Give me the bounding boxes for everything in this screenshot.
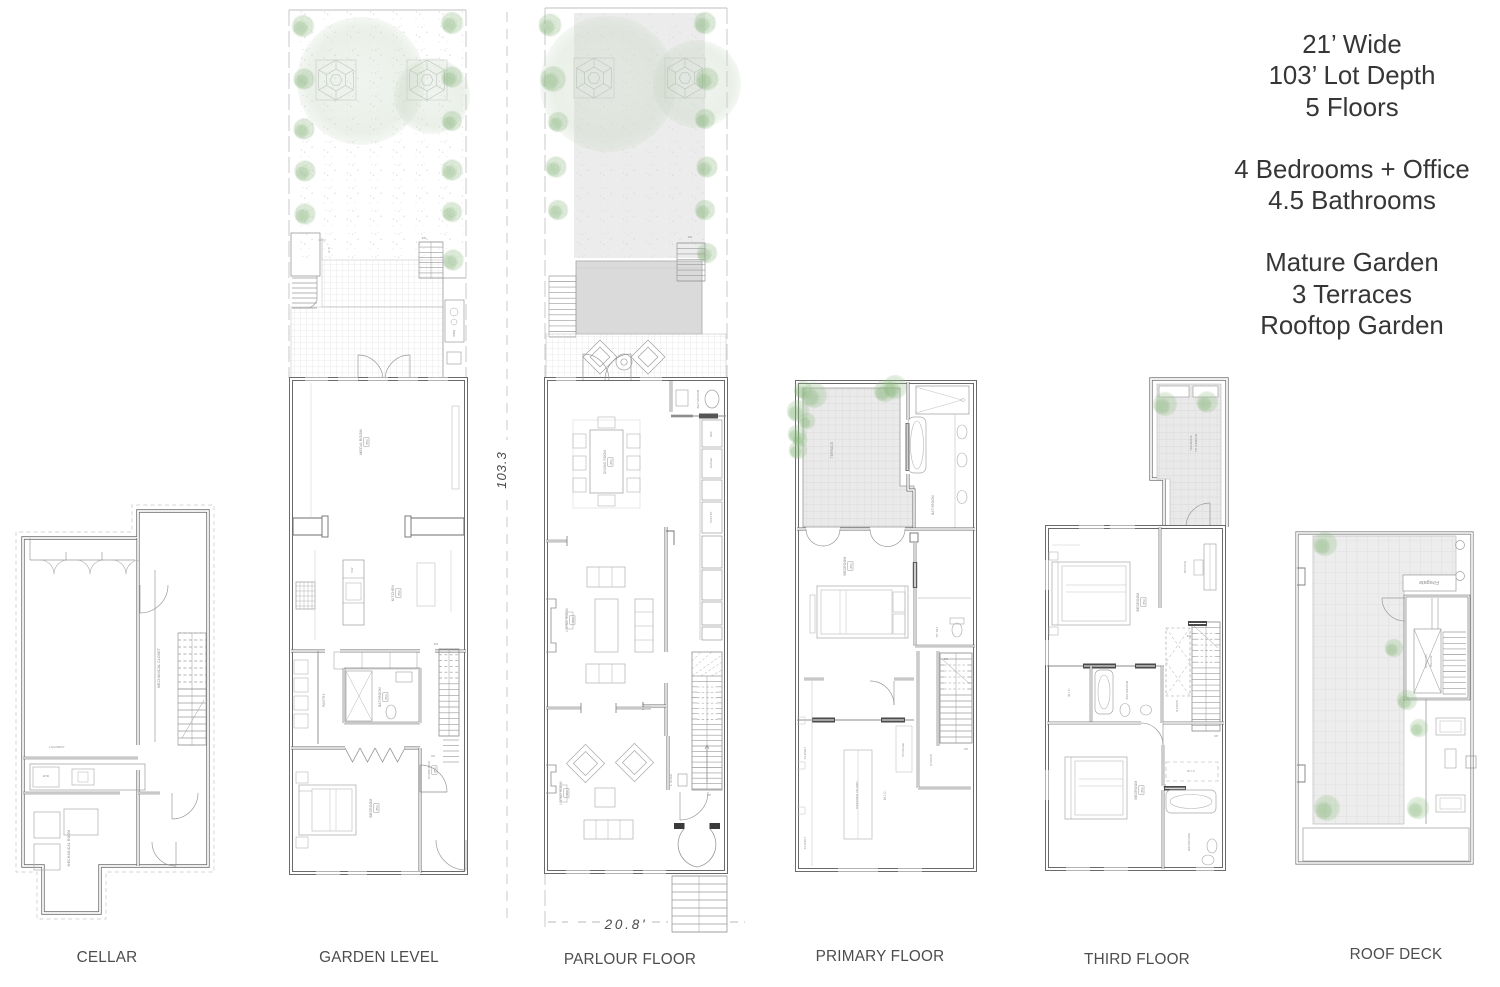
svg-text:BATHROOM: BATHROOM	[1187, 833, 1191, 851]
svg-text:20.8': 20.8'	[604, 917, 648, 932]
svg-text:4.5 Bathrooms: 4.5 Bathrooms	[1268, 187, 1436, 215]
svg-text:BEDROOM: BEDROOM	[369, 799, 373, 818]
svg-text:PANTRY: PANTRY	[322, 692, 326, 707]
svg-text:21’ Wide: 21’ Wide	[1302, 31, 1401, 59]
svg-text:UP: UP	[964, 747, 968, 751]
svg-text:DN: DN	[422, 236, 426, 240]
svg-text:KITCHEN: KITCHEN	[391, 585, 395, 602]
svg-text:STAIRS: STAIRS	[1175, 700, 1179, 712]
svg-text:BELOW: BELOW	[1429, 655, 1433, 666]
svg-text:DN: DN	[434, 642, 438, 646]
svg-text:BATHROOM: BATHROOM	[378, 687, 382, 707]
svg-text:DN: DN	[688, 235, 692, 239]
svg-text:LIVING ROOM: LIVING ROOM	[565, 608, 569, 632]
svg-text:BEDROOM: BEDROOM	[1136, 593, 1140, 612]
svg-text:TERRACE: TERRACE	[830, 442, 834, 459]
svg-text:DW: DW	[350, 567, 354, 572]
svg-text:BEDROOM: BEDROOM	[1134, 781, 1138, 800]
svg-text:RANGE: RANGE	[709, 458, 713, 468]
svg-text:PRIMARY FLOOR: PRIMARY FLOOR	[816, 948, 945, 965]
svg-text:4 Bedrooms + Office: 4 Bedrooms + Office	[1234, 156, 1469, 184]
svg-text:CLOSET: CLOSET	[803, 837, 807, 849]
svg-text:DRESSER ISLAND: DRESSER ISLAND	[855, 781, 859, 808]
svg-text:STAIRS: STAIRS	[929, 754, 933, 766]
svg-text:OPEN TO: OPEN TO	[1424, 653, 1428, 668]
svg-text:853: 853	[397, 590, 401, 595]
svg-text:Mature Garden: Mature Garden	[1265, 249, 1439, 277]
svg-text:Firegate: Firegate	[1419, 579, 1439, 585]
svg-text:TO REMAIN: TO REMAIN	[1194, 434, 1198, 452]
svg-text:REF: REF	[709, 431, 713, 437]
svg-text:W/D: W/D	[43, 774, 50, 778]
svg-text:UP: UP	[1214, 734, 1218, 738]
svg-text:BBQ: BBQ	[452, 329, 456, 336]
svg-text:BATHROOM: BATHROOM	[696, 389, 700, 408]
svg-text:TERRACE: TERRACE	[1189, 435, 1193, 451]
svg-text:UP: UP	[431, 754, 435, 758]
svg-text:TO S&T: TO S&T	[935, 626, 939, 637]
svg-text:853: 853	[384, 694, 388, 699]
svg-text:PANTRY: PANTRY	[709, 511, 713, 523]
svg-text:STORAGE: STORAGE	[901, 743, 905, 757]
svg-text:853: 853	[609, 459, 613, 464]
svg-text:OFFICE: OFFICE	[1183, 561, 1187, 573]
svg-text:853: 853	[365, 439, 369, 444]
svg-text:W.I.C: W.I.C	[1187, 769, 1195, 773]
svg-text:DN: DN	[944, 657, 948, 661]
svg-text:DN: DN	[1187, 634, 1191, 638]
svg-text:ROOF DECK: ROOF DECK	[1350, 946, 1443, 963]
svg-text:MEDIA ROOM: MEDIA ROOM	[359, 429, 363, 454]
svg-text:BATHROOM: BATHROOM	[931, 495, 935, 515]
svg-text:BEDROOM: BEDROOM	[843, 557, 847, 576]
svg-text:LAUNDRY: LAUNDRY	[49, 745, 65, 749]
svg-text:THIRD FLOOR: THIRD FLOOR	[1084, 951, 1190, 968]
svg-text:MECHANICAL CLOSET: MECHANICAL CLOSET	[157, 648, 161, 688]
svg-text:5 Floors: 5 Floors	[1305, 94, 1398, 122]
svg-text:W.I.C.: W.I.C.	[883, 790, 887, 800]
svg-text:GARDEN LEVEL: GARDEN LEVEL	[319, 949, 439, 966]
svg-text:853: 853	[375, 805, 379, 810]
svg-text:103.3: 103.3	[494, 451, 509, 489]
svg-text:CELLAR: CELLAR	[77, 949, 138, 966]
svg-text:F. DIVER: F. DIVER	[669, 774, 673, 786]
svg-text:3'-6: 3'-6	[327, 247, 331, 253]
svg-text:Rooftop Garden: Rooftop Garden	[1260, 312, 1444, 340]
svg-text:853: 853	[1142, 599, 1146, 604]
svg-text:3 Terraces: 3 Terraces	[1292, 281, 1412, 309]
svg-text:853: 853	[849, 563, 853, 568]
svg-text:CORRIDOR: CORRIDOR	[427, 760, 431, 779]
svg-text:CLOSET: CLOSET	[803, 747, 807, 759]
svg-text:PARLOUR FLOOR: PARLOUR FLOOR	[564, 951, 696, 968]
svg-text:LIVING ROOM: LIVING ROOM	[559, 781, 563, 805]
svg-text:103’ Lot Depth: 103’ Lot Depth	[1269, 62, 1436, 90]
svg-text:MECHANICAL ROOM: MECHANICAL ROOM	[67, 830, 71, 867]
svg-text:853: 853	[1140, 787, 1144, 792]
svg-text:BATHROOM: BATHROOM	[1125, 680, 1129, 699]
svg-text:W.I.C.: W.I.C.	[1067, 687, 1071, 696]
svg-text:DINING ROOM: DINING ROOM	[603, 450, 607, 474]
